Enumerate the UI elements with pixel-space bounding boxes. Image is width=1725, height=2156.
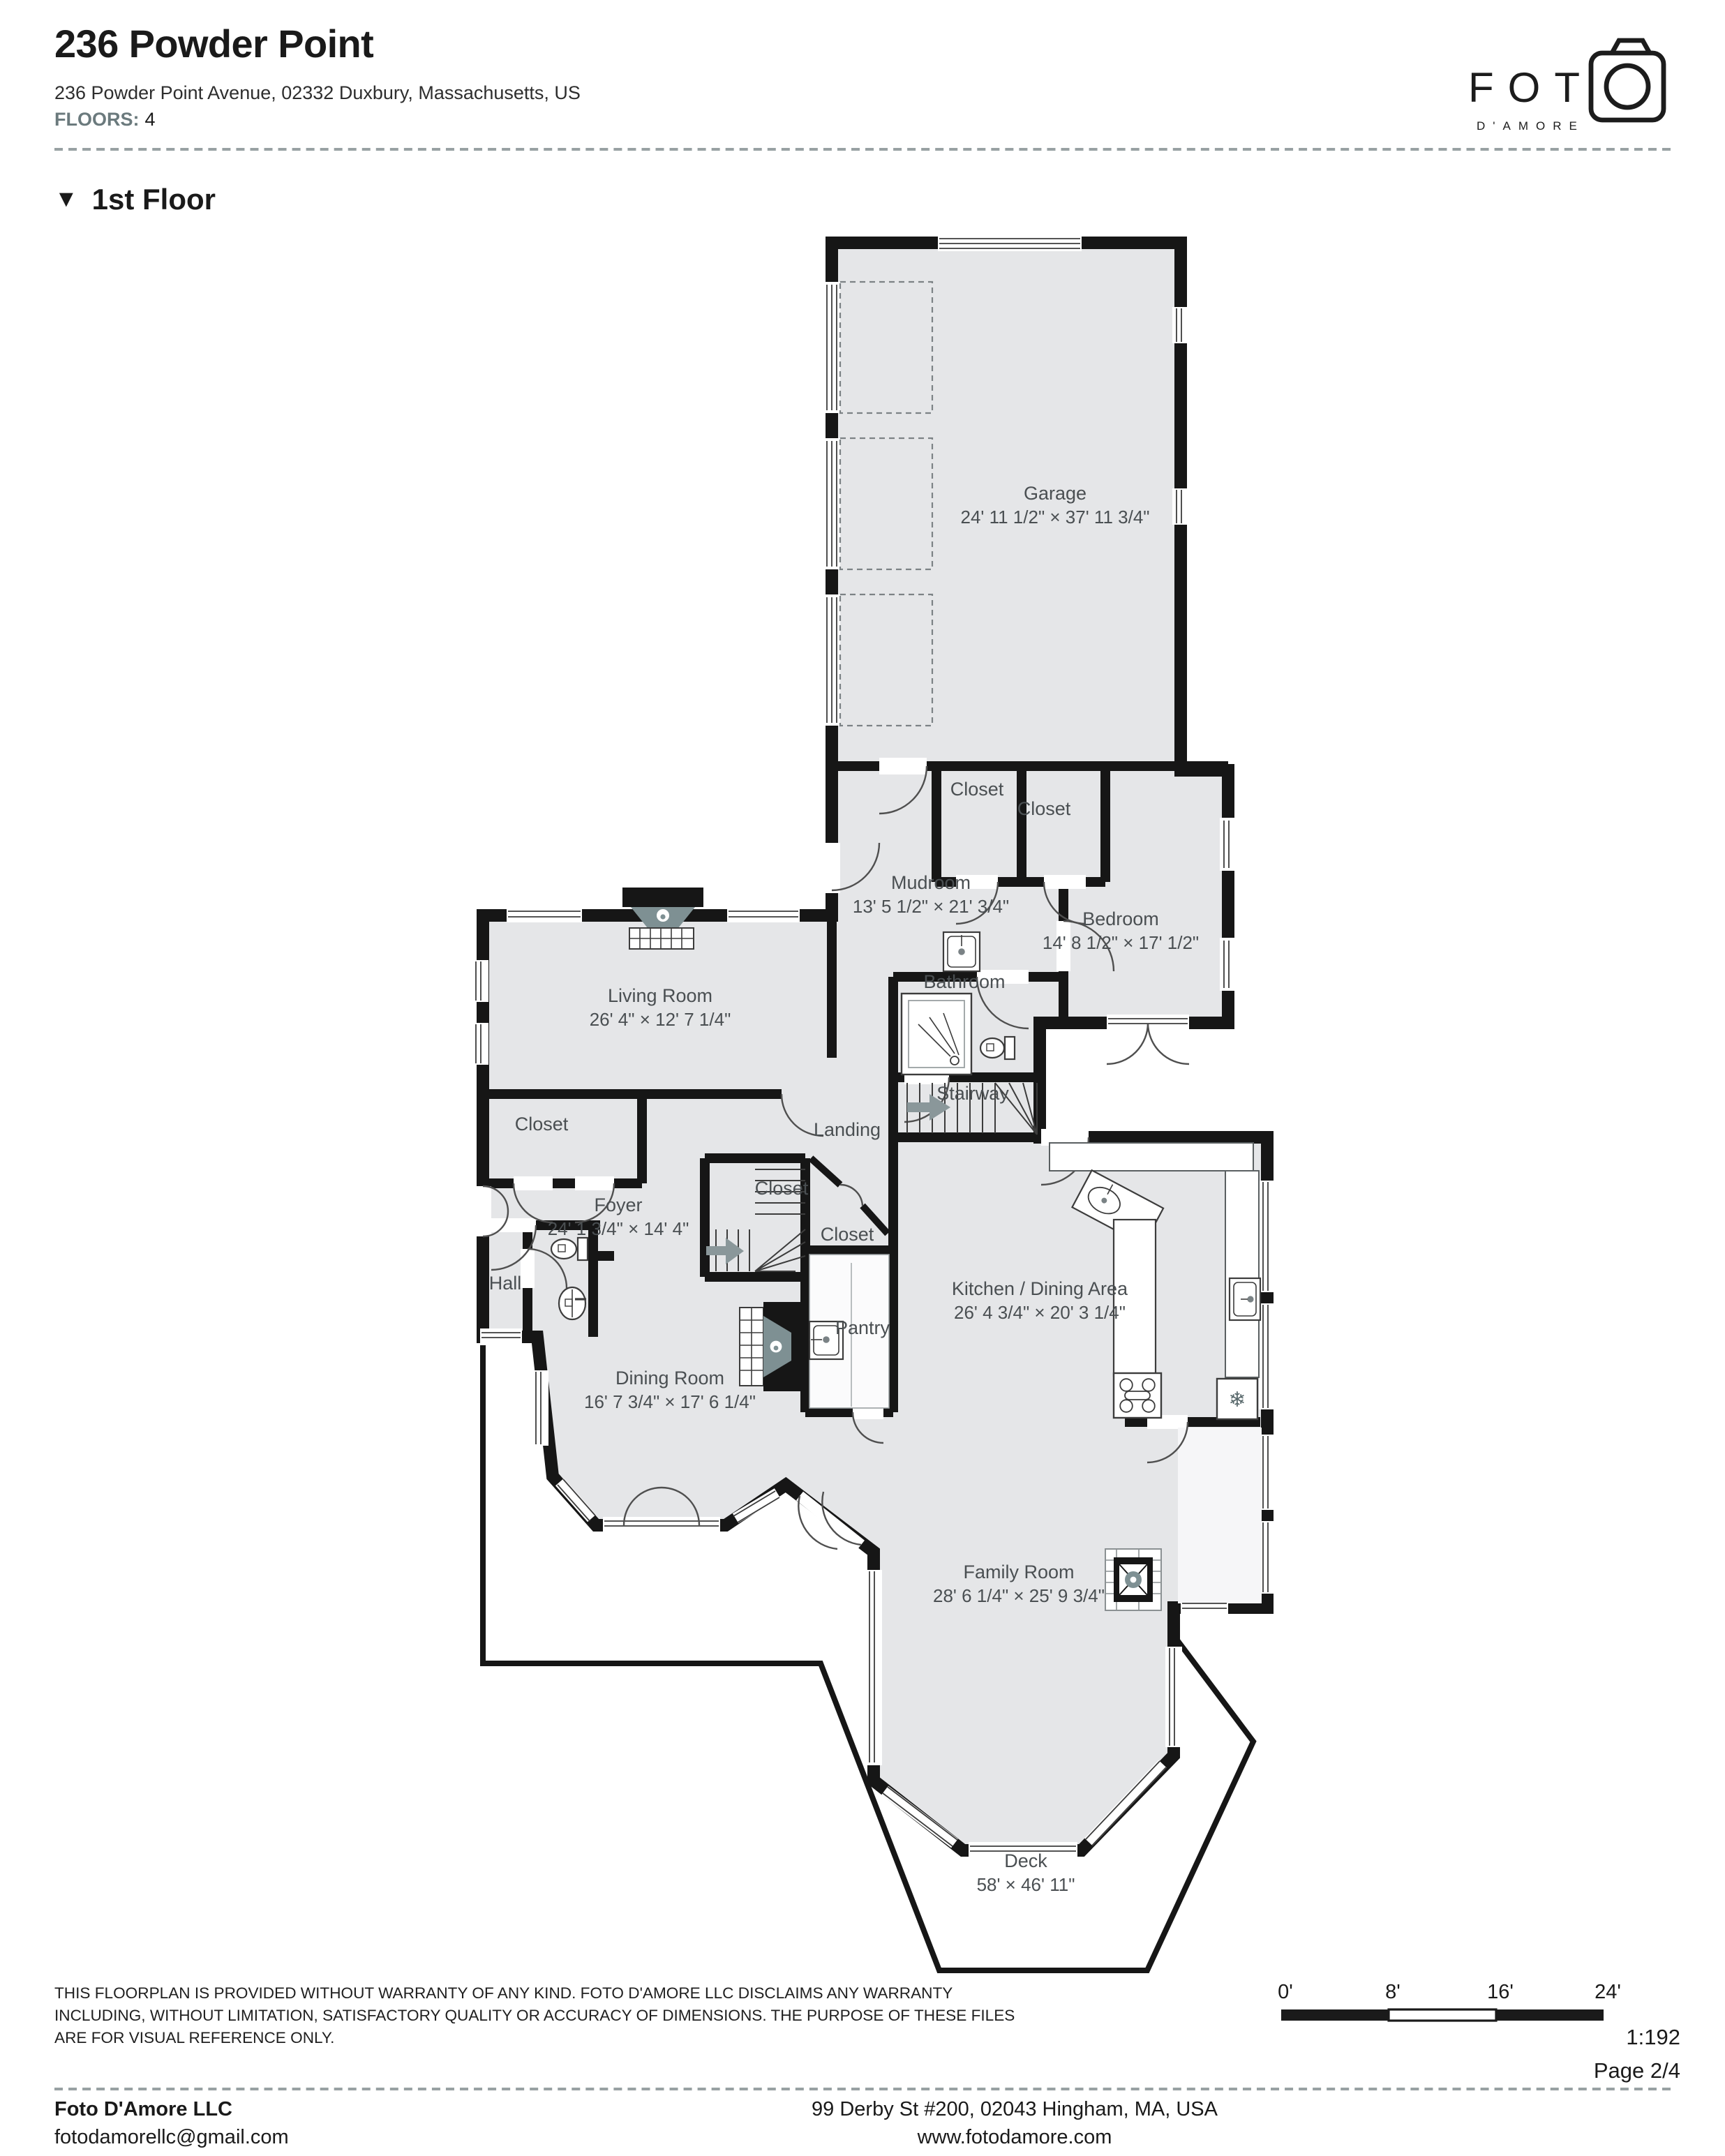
room-dims-foyer: 24' 1 3/4" × 14' 4" (548, 1218, 689, 1239)
room-label-closet-stairs: Closet (755, 1178, 809, 1199)
scale-tick-24: 24' (1595, 1981, 1621, 2003)
disclaimer-line-2: INCLUDING, WITHOUT LIMITATION, SATISFACT… (54, 2005, 1015, 2028)
mudroom-sink (943, 932, 980, 971)
room-label-landing: Landing (814, 1119, 881, 1140)
room-label-garage: Garage (1024, 483, 1086, 504)
toilet-icon (980, 1037, 1015, 1059)
disclaimer-line-1: THIS FLOORPLAN IS PROVIDED WITHOUT WARRA… (54, 1983, 1015, 2005)
room-label-closet-mudroom: Closet (950, 779, 1004, 800)
room-dims-deck: 58' × 46' 11" (977, 1874, 1075, 1895)
kitchen-sink (1230, 1278, 1260, 1320)
refrigerator-icon: ❄ (1217, 1379, 1257, 1419)
company-email: fotodamorellc@gmail.com (54, 2127, 289, 2149)
room-label-hall: Hall (489, 1273, 522, 1294)
room-dims-garage: 24' 11 1/2" × 37' 11 3/4" (960, 507, 1149, 527)
company-address: 99 Derby St #200, 02043 Hingham, MA, USA (642, 2099, 1387, 2121)
scale-tick-16: 16' (1487, 1981, 1514, 2003)
stove-icon (1114, 1373, 1161, 1418)
dining-fireplace (740, 1302, 805, 1391)
snowflake-icon: ❄ (1228, 1388, 1246, 1412)
family-room-fireplace (1105, 1549, 1161, 1610)
room-label-closet-foyer: Closet (821, 1224, 874, 1245)
room-label-closet-living: Closet (515, 1114, 569, 1135)
room-label-bedroom: Bedroom (1082, 908, 1159, 929)
room-label-stairway: Stairway (936, 1083, 1009, 1104)
company-name: Foto D'Amore LLC (54, 2099, 232, 2121)
flame-icon (774, 1346, 779, 1351)
toilet-icon (551, 1238, 588, 1260)
pedestal-sink-icon (559, 1287, 586, 1319)
scale-bar: 0' 8' 16' 24' (1256, 1979, 1675, 2035)
screenshot-stage: 236 Powder Point 236 Powder Point Avenue… (0, 0, 1725, 2156)
room-dims-dining-room: 16' 7 3/4" × 17' 6 1/4" (584, 1391, 756, 1412)
floorplan-drawing: ❄ Garage 24' 11 1/2" × 37' 11 3/4" Close… (0, 0, 1725, 2156)
passage-floor (1178, 1428, 1262, 1603)
flame-icon (660, 914, 665, 919)
room-label-family-room: Family Room (963, 1562, 1074, 1582)
disclaimer-line-3: ARE FOR VISUAL REFERENCE ONLY. (54, 2028, 1015, 2050)
floorplan-page: 236 Powder Point 236 Powder Point Avenue… (0, 0, 1725, 2156)
flame-icon (1130, 1577, 1137, 1583)
room-dims-living-room: 26' 4" × 12' 7 1/4" (590, 1009, 731, 1030)
disclaimer-text: THIS FLOORPLAN IS PROVIDED WITHOUT WARRA… (54, 1983, 1015, 2050)
page-number: Page 2/4 (1594, 2060, 1680, 2085)
room-label-pantry: Pantry (835, 1317, 890, 1338)
room-dims-kitchen: 26' 4 3/4" × 20' 3 1/4" (954, 1302, 1126, 1323)
scale-ratio: 1:192 (1626, 2026, 1680, 2051)
room-dims-family-room: 28' 6 1/4" × 25' 9 3/4" (933, 1585, 1105, 1606)
room-label-closet-bedroom: Closet (1017, 798, 1071, 819)
footer-divider (54, 2088, 1671, 2090)
room-label-bathroom: Bathroom (923, 971, 1005, 992)
scale-tick-0: 0' (1278, 1981, 1293, 2003)
room-dims-mudroom: 13' 5 1/2" × 21' 3/4" (853, 896, 1009, 917)
room-label-mudroom: Mudroom (891, 872, 971, 893)
room-label-dining-room: Dining Room (615, 1368, 724, 1388)
scale-tick-8: 8' (1385, 1981, 1401, 2003)
room-label-living-room: Living Room (608, 985, 712, 1006)
room-label-deck: Deck (1004, 1850, 1047, 1871)
room-label-foyer: Foyer (594, 1195, 642, 1215)
company-website: www.fotodamore.com (642, 2127, 1387, 2149)
room-label-kitchen: Kitchen / Dining Area (952, 1278, 1128, 1299)
room-dims-bedroom: 14' 8 1/2" × 17' 1/2" (1043, 932, 1199, 953)
